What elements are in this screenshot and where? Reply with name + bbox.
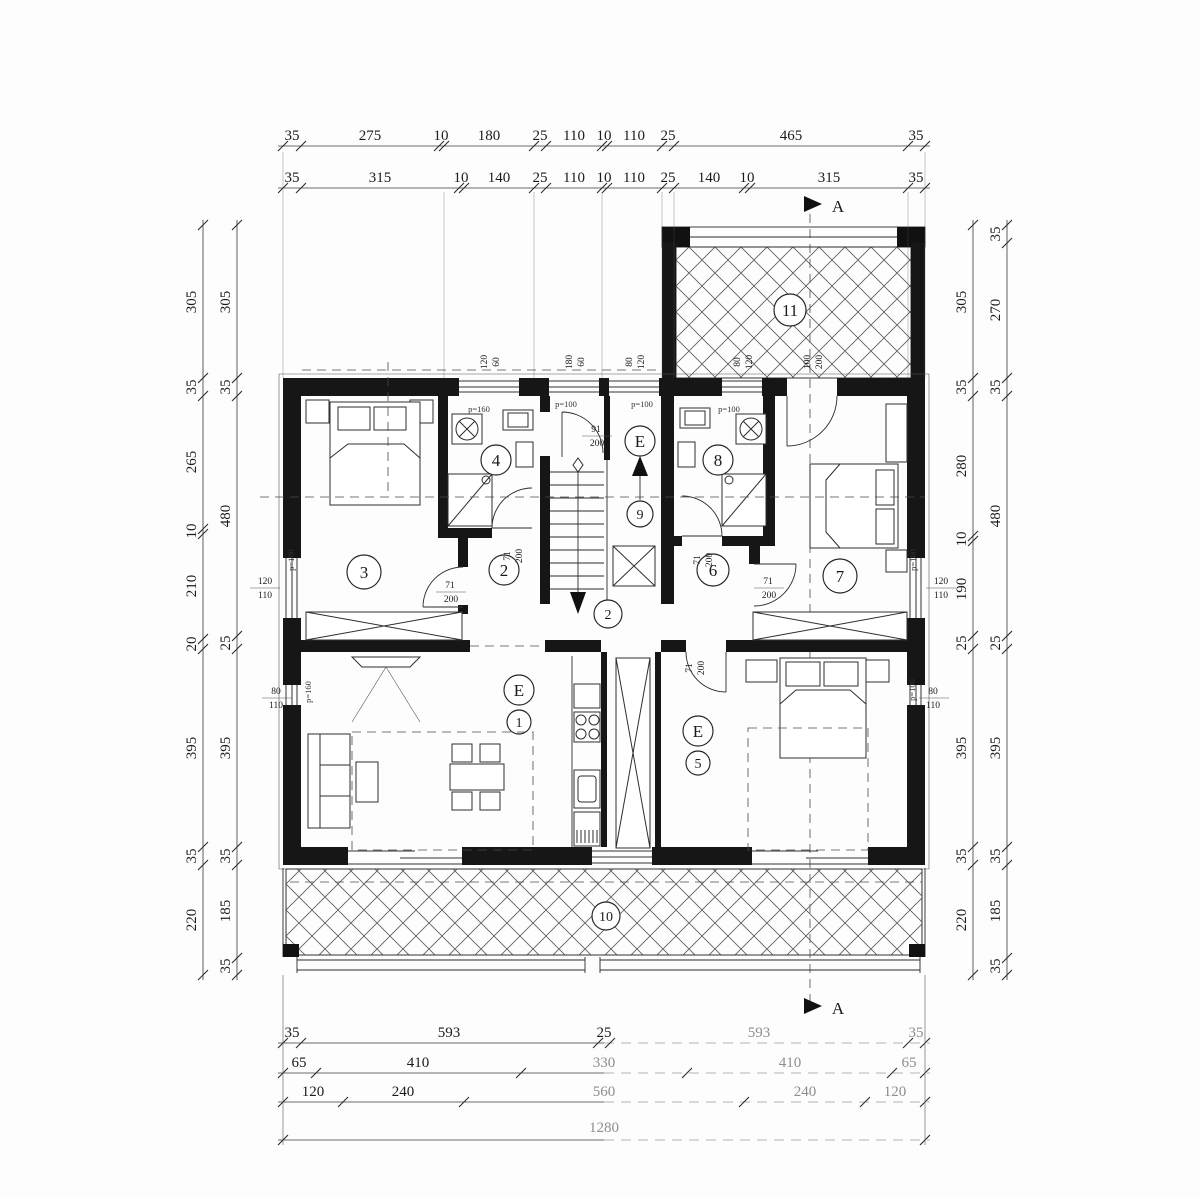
- window-size: 120: [637, 355, 647, 370]
- dim-value: 25: [533, 170, 548, 186]
- dim-value: 120: [884, 1084, 907, 1100]
- dim-value: 35: [909, 128, 924, 144]
- chair: [452, 792, 472, 810]
- bedroom-3-furniture: [306, 400, 433, 505]
- staircase: E 9: [550, 426, 655, 614]
- entry-label: E: [693, 722, 703, 741]
- dim-value: 35: [285, 1025, 300, 1041]
- dim-value: 35: [218, 849, 234, 864]
- door-size: 71: [503, 551, 513, 561]
- dim-value: 180: [478, 128, 501, 144]
- dim-value: 35: [909, 170, 924, 186]
- dim-value-total: 1280: [589, 1120, 619, 1136]
- room-number: 2: [605, 608, 612, 623]
- dim-value: 35: [218, 380, 234, 395]
- bed: [810, 464, 898, 548]
- window-size: 110: [258, 591, 272, 601]
- up-arrow-icon: [632, 456, 648, 476]
- room-number: 11: [782, 301, 798, 320]
- door-size: 200: [515, 549, 525, 564]
- door-size: 200: [590, 439, 605, 449]
- window-size: 100: [803, 355, 813, 370]
- parapet-label: p=160: [303, 681, 313, 703]
- dim-value: 120: [302, 1084, 325, 1100]
- dim-value: 560: [593, 1084, 616, 1100]
- dim-value: 185: [988, 900, 1004, 923]
- dim-value: 65: [902, 1055, 917, 1071]
- parapet-label: p=100: [555, 399, 577, 409]
- door-size: 200: [444, 595, 459, 605]
- dim-value: 410: [779, 1055, 802, 1071]
- toilet-icon: [516, 442, 533, 467]
- dim-value: 270: [988, 299, 1004, 322]
- wardrobe: [886, 404, 907, 462]
- room-number: 7: [836, 567, 845, 586]
- dim-value: 35: [988, 227, 1004, 242]
- balcony-11: 11: [662, 227, 925, 378]
- parapet-label: p=100: [907, 679, 917, 701]
- kitchen-cabinet: [574, 684, 600, 708]
- room-number: 5: [695, 757, 702, 772]
- top-dimension-strip: 35 275 10 180 25 110 10 110 25 465 35 35…: [278, 128, 930, 193]
- left-dimension-strip: 305 35 265 10 210 20 395 35 220 305 35 4…: [184, 220, 242, 980]
- section-label: A: [832, 999, 845, 1018]
- stair-start-diamond-icon: [573, 458, 583, 472]
- chair: [452, 744, 472, 762]
- window-size: 120: [934, 577, 949, 587]
- right-dim-outer: 35 270 35 480 25 395 35 185 35: [988, 227, 1004, 974]
- dim-value: 410: [407, 1055, 430, 1071]
- coffee-table: [356, 762, 378, 802]
- dim-value: 35: [184, 380, 200, 395]
- bottom-dim-row2: 65 410 330 410 65: [292, 1055, 917, 1071]
- dim-value: 35: [285, 128, 300, 144]
- dim-value: 10: [454, 170, 469, 186]
- dim-value: 110: [563, 128, 585, 144]
- window-size: 120: [258, 577, 273, 587]
- bottom-dim-row3: 120 240 560 240 120: [302, 1084, 907, 1100]
- dim-value: 280: [954, 455, 970, 478]
- room-number: 9: [637, 508, 644, 523]
- nightstand: [746, 660, 777, 682]
- terrace-10: 10: [283, 868, 925, 973]
- dim-value: 35: [988, 849, 1004, 864]
- dim-value: 185: [218, 900, 234, 923]
- chair: [480, 792, 500, 810]
- dim-value: 110: [623, 170, 645, 186]
- dim-value: 10: [184, 524, 200, 539]
- dim-value: 210: [184, 575, 200, 598]
- right-dimension-strip: 305 35 280 10 190 25 395 35 220 35 270 3…: [954, 220, 1012, 980]
- dim-value: 110: [623, 128, 645, 144]
- nightstand: [886, 550, 907, 572]
- window-size: 110: [934, 591, 948, 601]
- dim-value: 25: [218, 636, 234, 651]
- dim-value: 10: [954, 532, 970, 547]
- dim-value: 25: [661, 170, 676, 186]
- section-marker-icon: [804, 998, 822, 1014]
- door-size: 71: [445, 581, 455, 591]
- dim-value: 305: [218, 291, 234, 314]
- entry-label: E: [635, 432, 645, 451]
- dim-value: 240: [794, 1084, 817, 1100]
- stair-direction-arrow-icon: [570, 592, 586, 614]
- dim-value: 305: [954, 291, 970, 314]
- parapet-label: p=100: [908, 549, 918, 571]
- room-number: 1: [516, 716, 523, 731]
- window-size: 80: [928, 687, 938, 697]
- dim-value: 315: [818, 170, 841, 186]
- dim-value: 305: [184, 291, 200, 314]
- dim-value: 25: [988, 636, 1004, 651]
- dim-value: 35: [285, 170, 300, 186]
- dim-value: 395: [184, 737, 200, 760]
- dim-value: 10: [597, 170, 612, 186]
- dim-value: 10: [740, 170, 755, 186]
- dim-value: 140: [698, 170, 721, 186]
- section-marker-icon: [804, 196, 822, 212]
- left-dim-outer: 305 35 265 10 210 20 395 35 220: [184, 291, 200, 932]
- window-size: 60: [577, 357, 587, 367]
- room-number: 10: [599, 910, 613, 925]
- door-size: 71: [685, 663, 695, 673]
- door-size: 200: [705, 553, 715, 568]
- dim-value: 25: [533, 128, 548, 144]
- dim-value: 10: [597, 128, 612, 144]
- left-dim-inner: 305 35 480 25 395 35 185 35: [218, 291, 234, 974]
- sofa: [308, 734, 350, 828]
- floor-plan-drawing: 35 275 10 180 25 110 10 110 25 465 35 35…: [0, 0, 1200, 1197]
- dim-value: 220: [184, 909, 200, 932]
- bottom-dim-row1: 35 593 25 593 35: [285, 1025, 924, 1041]
- dim-value: 593: [748, 1025, 771, 1041]
- door-size: 91: [591, 425, 601, 435]
- window-size: 60: [492, 357, 502, 367]
- dim-value: 35: [954, 380, 970, 395]
- dining-table: [450, 764, 504, 790]
- dim-value: 35: [988, 959, 1004, 974]
- bedroom-e5: E 5: [683, 658, 889, 775]
- window-size: 120: [745, 355, 755, 370]
- dim-value: 140: [488, 170, 511, 186]
- nightstand: [306, 400, 329, 423]
- dim-value: 480: [988, 505, 1004, 528]
- door-size: 71: [693, 555, 703, 565]
- window-size: 200: [815, 355, 825, 370]
- toilet-icon: [678, 442, 695, 467]
- parapet-label: p=100: [718, 404, 740, 414]
- dim-value: 465: [780, 128, 803, 144]
- parapet-label: p=100: [631, 399, 653, 409]
- window-size: 110: [269, 701, 283, 711]
- dim-value: 25: [954, 636, 970, 651]
- dim-value: 593: [438, 1025, 461, 1041]
- tv-icon: [352, 657, 420, 667]
- window-size: 120: [480, 355, 490, 370]
- dim-value: 330: [593, 1055, 616, 1071]
- entry-label: E: [514, 681, 524, 700]
- chair: [480, 744, 500, 762]
- dim-value: 35: [954, 849, 970, 864]
- parapet-label: p=100: [286, 549, 296, 571]
- dim-value: 20: [184, 637, 200, 652]
- dim-value: 265: [184, 451, 200, 474]
- door-size: 200: [762, 591, 777, 601]
- window-size: 110: [926, 701, 940, 711]
- parapet-label: p=160: [468, 404, 490, 414]
- window-size: 180: [565, 355, 575, 370]
- dim-value: 25: [597, 1025, 612, 1041]
- dim-value: 220: [954, 909, 970, 932]
- dim-value: 35: [184, 849, 200, 864]
- window-size: 80: [271, 687, 281, 697]
- dim-value: 395: [988, 737, 1004, 760]
- dim-value: 110: [563, 170, 585, 186]
- top-dim-row2: 35 315 10 140 25 110 10 110 25 140 10 31…: [285, 170, 924, 186]
- dishwasher-icon: [574, 812, 600, 846]
- dim-value: 395: [954, 737, 970, 760]
- dim-value: 65: [292, 1055, 307, 1071]
- right-dim-inner: 305 35 280 10 190 25 395 35 220: [954, 291, 970, 932]
- dim-value: 10: [434, 128, 449, 144]
- nightstand: [864, 660, 889, 682]
- room-number: 2: [500, 561, 509, 580]
- window-size: 80: [733, 357, 743, 367]
- top-dim-row1: 35 275 10 180 25 110 10 110 25 465 35: [285, 128, 924, 144]
- shaft-column: [616, 658, 650, 848]
- dim-value: 35: [988, 380, 1004, 395]
- dim-value: 275: [359, 128, 382, 144]
- dim-value: 395: [218, 737, 234, 760]
- room-number: 4: [492, 451, 501, 470]
- door-size: 71: [763, 577, 773, 587]
- dim-value: 35: [218, 959, 234, 974]
- dim-value: 480: [218, 505, 234, 528]
- window-size: 80: [625, 357, 635, 367]
- dim-value: 240: [392, 1084, 415, 1100]
- room-number: 8: [714, 451, 723, 470]
- room-number: 3: [360, 563, 369, 582]
- dim-value: 25: [661, 128, 676, 144]
- dim-value: 190: [954, 578, 970, 601]
- floor-plan-page: 35 275 10 180 25 110 10 110 25 465 35 35…: [0, 0, 1200, 1197]
- bed: [780, 658, 866, 758]
- dim-value: 35: [909, 1025, 924, 1041]
- section-label: A: [832, 197, 845, 216]
- door-size: 200: [697, 661, 707, 676]
- dim-value: 315: [369, 170, 392, 186]
